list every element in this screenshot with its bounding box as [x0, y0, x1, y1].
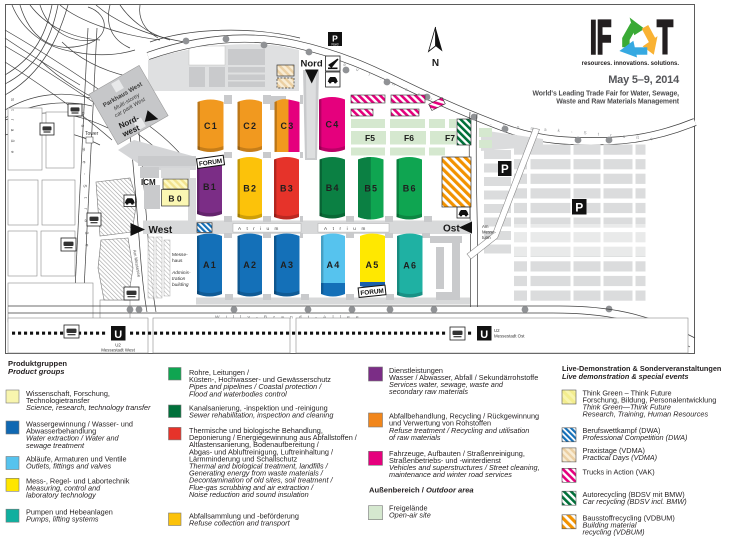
svg-text:P: P	[501, 164, 509, 176]
svg-text:building: building	[172, 282, 189, 288]
svg-text:turm: turm	[482, 235, 491, 240]
svg-text:A1: A1	[203, 260, 217, 270]
svg-text:haus: haus	[172, 258, 183, 264]
svg-text:Flood and waterbodies control: Flood and waterbodies control	[189, 389, 287, 398]
svg-text:T: T	[657, 11, 673, 64]
svg-text:Nord: Nord	[332, 42, 339, 46]
svg-text:ICM: ICM	[141, 178, 156, 187]
svg-text:Outlets, fittings and valves: Outlets, fittings and valves	[26, 462, 112, 471]
svg-text:secondary raw materials: secondary raw materials	[389, 387, 468, 396]
svg-text:B1: B1	[203, 182, 217, 192]
svg-text:Außenbereich / Outdoor area: Außenbereich / Outdoor area	[369, 486, 474, 495]
svg-text:Atrium: Atrium	[238, 226, 284, 231]
svg-text:U: U	[114, 329, 122, 341]
svg-text:A6: A6	[403, 261, 417, 271]
svg-text:B4: B4	[326, 183, 340, 193]
svg-text:N: N	[432, 58, 439, 69]
svg-text:Live demonstration & special e: Live demonstration & special events	[562, 372, 689, 381]
svg-text:West: West	[149, 225, 173, 236]
svg-text:Open-air site: Open-air site	[389, 511, 431, 520]
svg-text:A5: A5	[366, 260, 380, 270]
svg-text:of raw materials: of raw materials	[389, 433, 441, 442]
svg-text:A3: A3	[280, 260, 294, 270]
svg-text:U: U	[480, 329, 488, 341]
svg-text:Refuse collection and transpor: Refuse collection and transport	[189, 519, 291, 528]
svg-text:U2: U2	[494, 328, 500, 333]
svg-text:Waste and Raw Materials Manage: Waste and Raw Materials Management	[556, 99, 680, 106]
svg-text:Professional Competition (DWA): Professional Competition (DWA)	[583, 433, 688, 442]
svg-text:tration: tration	[172, 276, 186, 282]
svg-text:Pumps, lifting systems: Pumps, lifting systems	[26, 515, 99, 524]
svg-text:World's Leading Trade Fair for: World's Leading Trade Fair for Water, Se…	[533, 91, 680, 98]
svg-text:Noise reduction and sound insu: Noise reduction and sound insulation	[189, 490, 309, 499]
svg-text:F5: F5	[365, 133, 375, 143]
svg-text:C2: C2	[243, 121, 257, 131]
svg-text:Ost: Ost	[443, 224, 460, 235]
svg-text:B6: B6	[403, 183, 417, 193]
svg-text:Nord: Nord	[301, 59, 323, 70]
svg-text:Messestadt Ost: Messestadt Ost	[494, 334, 525, 339]
svg-text:Messe-: Messe-	[172, 252, 188, 258]
svg-text:Practical Days (VDMA): Practical Days (VDMA)	[583, 453, 658, 462]
svg-text:Product groups: Product groups	[8, 367, 65, 376]
svg-text:F7: F7	[445, 133, 455, 143]
svg-text:Messestadt West: Messestadt West	[101, 348, 135, 353]
svg-text:A4: A4	[327, 260, 341, 270]
svg-text:P: P	[575, 201, 583, 215]
svg-text:Atrium: Atrium	[324, 226, 371, 231]
svg-text:Car recycling (BDSV incl. BMW): Car recycling (BDSV incl. BMW)	[583, 497, 687, 506]
svg-text:sewage treatment: sewage treatment	[26, 441, 85, 450]
svg-text:C1: C1	[204, 121, 218, 131]
svg-text:F6: F6	[404, 133, 414, 143]
svg-text:Am: Am	[482, 224, 489, 229]
svg-text:maintenance and winter road se: maintenance and winter road services	[389, 470, 512, 479]
svg-text:Science, research, technology: Science, research, technology transfer	[26, 403, 151, 412]
svg-text:S t r a ß e: S t r a ß e	[10, 98, 15, 157]
svg-text:C4: C4	[326, 120, 340, 130]
svg-text:B3: B3	[280, 183, 294, 193]
svg-text:A2: A2	[243, 260, 257, 270]
svg-text:recycling (VDBUM): recycling (VDBUM)	[583, 528, 645, 537]
svg-text:Sewer rehabilitation, inspecti: Sewer rehabilitation, inspection and cle…	[189, 411, 333, 420]
svg-text:IF: IF	[590, 11, 612, 64]
svg-text:B2: B2	[243, 183, 257, 193]
svg-text:Tower: Tower	[85, 131, 99, 137]
svg-text:Research, Training, Human Reso: Research, Training, Human Resources	[583, 410, 709, 419]
svg-text:Messe-: Messe-	[482, 230, 497, 235]
svg-text:C3: C3	[281, 121, 295, 131]
svg-text:Adminis-: Adminis-	[171, 270, 191, 276]
svg-text:May 5–9, 2014: May 5–9, 2014	[608, 74, 680, 86]
svg-text:laboratory technology: laboratory technology	[26, 491, 97, 500]
svg-text:B 0: B 0	[168, 194, 182, 204]
svg-text:Trucks in Action (VAK): Trucks in Action (VAK)	[583, 467, 655, 476]
svg-text:resources. innovations. soluti: resources. innovations. solutions.	[582, 61, 680, 67]
svg-text:B5: B5	[364, 184, 378, 194]
